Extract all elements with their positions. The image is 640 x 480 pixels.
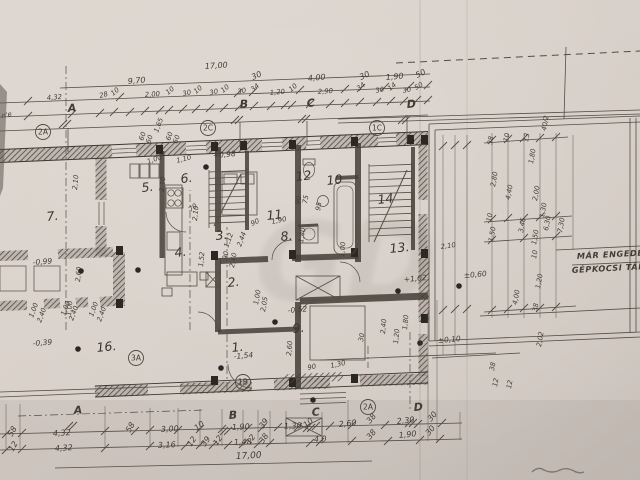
dimension-label: 17,00 (205, 60, 228, 71)
grid-bubble-label: 3A (131, 354, 142, 363)
room-number: 2. (227, 274, 240, 290)
section-marker: B (239, 97, 248, 111)
dimension-label: 2,00 (145, 90, 161, 99)
dimension-label: 10 (502, 132, 511, 142)
level-value: -0,99 (32, 256, 52, 267)
section-marker: A (66, 101, 76, 115)
watermark: GD (255, 198, 437, 326)
dimension-label: 12 (491, 377, 500, 387)
room-number: 12 (295, 167, 312, 184)
dimension-label: 4,32 (47, 93, 63, 102)
floor-plan-drawing: 17,009,70304,00301,90504,3228102,0010301… (0, 0, 640, 480)
level-value: -1,54 (233, 350, 253, 361)
room-number: 10 (326, 171, 343, 188)
room-number: 5. (141, 179, 154, 195)
dimension-label: 30 (357, 332, 366, 342)
dimension-label: 10 (485, 212, 494, 222)
grid-bubble-label: 1C (372, 124, 382, 133)
dimension-label: 2,60 (285, 340, 294, 356)
dimension-label: 10 (530, 249, 539, 259)
dimension-label: 1,52 (197, 251, 206, 267)
dimension-label: 1,20 (269, 88, 285, 97)
bottom-shade (0, 400, 640, 480)
dimension-label: 12 (505, 379, 514, 389)
level-value: -0,39 (32, 337, 52, 348)
dimension-label: 1,90 (385, 71, 404, 82)
room-number: 4. (174, 244, 187, 260)
grid-bubble-label: 2A (38, 128, 49, 137)
room-number: 16. (96, 338, 117, 355)
section-marker: C (306, 96, 315, 110)
dimension-label: 2,10 (71, 174, 80, 190)
scanned-floorplan-page: 17,009,70304,00301,90504,3228102,0010301… (0, 0, 640, 480)
grid-bubble-label: 2C (203, 124, 213, 133)
dimension-label: 2,90 (318, 87, 334, 96)
dimension-label: 9,70 (127, 75, 146, 86)
dimension-label: 1,20 (392, 328, 401, 344)
section-marker: D (406, 97, 416, 111)
grid-bubble-label: 1B (238, 378, 248, 387)
room-number: 3. (215, 227, 228, 243)
room-number: 7. (46, 208, 59, 224)
dimension-label: 13 (522, 132, 531, 142)
dimension-label: 2,10 (158, 176, 167, 192)
dimension-label: 4,00 (307, 72, 326, 83)
dimension-label: 2,10 (191, 205, 200, 221)
room-number: 6. (180, 170, 193, 186)
